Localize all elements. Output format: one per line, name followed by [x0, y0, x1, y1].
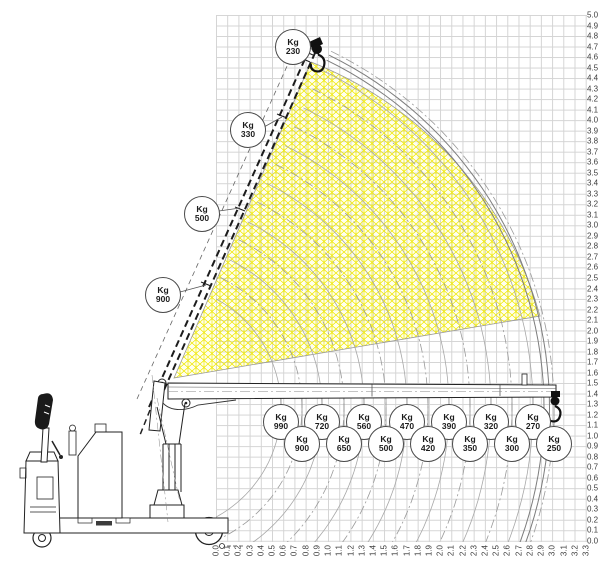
capacity-value: 320	[484, 422, 498, 431]
capacity-circle-lower-7: Kg250	[536, 426, 572, 462]
work-area	[174, 62, 540, 378]
capacity-circle-raised-1: Kg230	[275, 29, 311, 65]
capacity-value: 500	[379, 444, 393, 453]
capacity-circle-raised-4: Kg900	[145, 277, 181, 313]
capacity-value: 300	[505, 444, 519, 453]
capacity-value: 390	[442, 422, 456, 431]
capacity-value: 560	[357, 422, 371, 431]
capacity-circle-raised-2: Kg330	[230, 112, 266, 148]
diagram-artwork	[0, 0, 600, 567]
capacity-circle-lower-4: Kg420	[410, 426, 446, 462]
capacity-value: 720	[315, 422, 329, 431]
crane-illustration	[20, 375, 243, 549]
capacity-value: 500	[195, 214, 209, 223]
capacity-value: 250	[547, 444, 561, 453]
capacity-value: 900	[295, 444, 309, 453]
load-chart: 5.04.94.84.74.64.54.44.34.24.14.03.93.83…	[0, 0, 600, 567]
capacity-circle-lower-6: Kg300	[494, 426, 530, 462]
capacity-circle-lower-3: Kg500	[368, 426, 404, 462]
capacity-value: 470	[400, 422, 414, 431]
capacity-circle-lower-2: Kg650	[326, 426, 362, 462]
brand-mark	[96, 521, 112, 526]
capacity-circle-raised-3: Kg500	[184, 196, 220, 232]
capacity-value: 900	[156, 295, 170, 304]
capacity-value: 270	[526, 422, 540, 431]
capacity-value: 330	[241, 130, 255, 139]
capacity-value: 420	[421, 444, 435, 453]
capacity-value: 650	[337, 444, 351, 453]
capacity-circle-lower-5: Kg350	[452, 426, 488, 462]
capacity-value: 230	[286, 47, 300, 56]
capacity-circle-lower-1: Kg900	[284, 426, 320, 462]
capacity-value: 990	[274, 422, 288, 431]
capacity-value: 350	[463, 444, 477, 453]
